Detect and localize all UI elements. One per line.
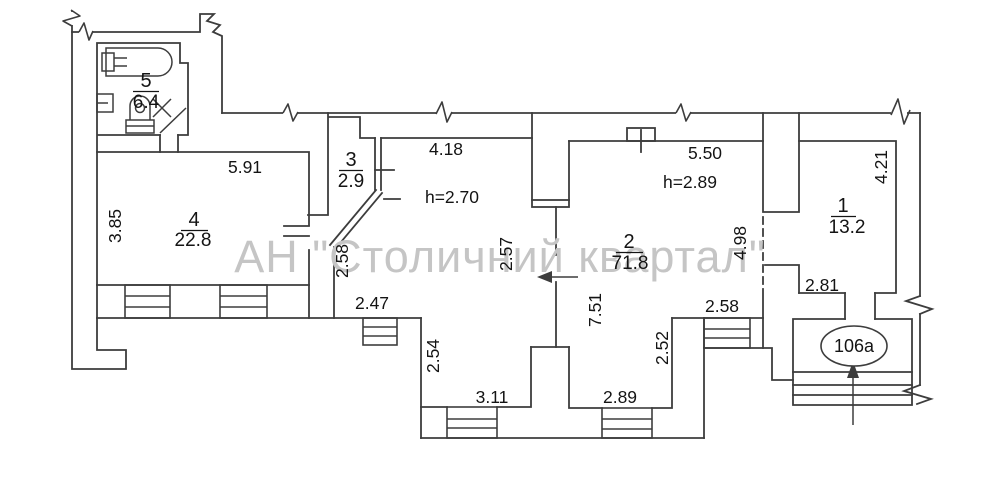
wall-break-symbols: [63, 10, 910, 124]
window-room2-east: [704, 318, 750, 348]
break-bath-top: [79, 23, 93, 40]
break-top-right: [891, 99, 910, 124]
floor-plan: АН "Столичний квартал" 5 6.4 4 22.8 3 2.…: [0, 0, 1000, 502]
room-4-number: 4: [188, 209, 199, 231]
room-2-area: 71.8: [612, 253, 649, 274]
corridor-step: [765, 265, 799, 293]
room3-door-strip: [375, 138, 381, 190]
dim-room2-window: 2.58: [705, 296, 739, 316]
break-top-1: [283, 104, 298, 122]
right-shaft-walls: [763, 113, 799, 212]
room1-door-jambs: [845, 293, 875, 319]
room-5-number: 5: [140, 70, 151, 92]
room3-door-ticks: [375, 170, 400, 199]
room-3-area: 2.9: [338, 171, 364, 192]
shaft-walls: [532, 113, 569, 200]
entrance-unit-number: 106a: [834, 336, 875, 356]
walls: [72, 12, 932, 438]
window-bay-right: [602, 408, 652, 438]
room-5-area: 6.4: [133, 92, 160, 113]
dim-room1-right: 4.21: [871, 150, 891, 184]
room-4-label: 4 22.8: [175, 209, 212, 251]
wall-break-right-1: [906, 296, 932, 314]
room-3-label: 3 2.9: [338, 149, 364, 192]
dim-room4-top: 5.91: [228, 157, 262, 177]
dim-room2-top: 5.50: [688, 143, 722, 163]
dim-bay-bottom-right: 2.89: [603, 387, 637, 407]
sink-icon: [97, 94, 113, 112]
window-hall: [363, 318, 397, 345]
dim-bay-bottom-left: 3.11: [476, 387, 509, 407]
room-1-area: 13.2: [829, 217, 866, 238]
dim-bay-left-side: 2.54: [423, 339, 443, 373]
dim-room1-bottom: 2.81: [805, 275, 839, 295]
dim-hall-right: 2.57: [496, 237, 516, 271]
dim-bay-left-top: 2.47: [355, 293, 389, 313]
window-room4-right: [220, 285, 267, 318]
break-top-2: [436, 102, 452, 122]
dim-room4-left: 3.85: [105, 209, 125, 243]
room-4-area: 22.8: [175, 230, 212, 251]
window-bay-left: [447, 407, 497, 438]
dim-room2-right: 4.98: [730, 226, 750, 260]
break-top-3: [676, 104, 691, 122]
room-2-number: 2: [623, 231, 634, 253]
entrance-arrow: [847, 361, 859, 425]
window-room4-left: [125, 285, 170, 318]
height-room2: h=2.89: [663, 172, 717, 192]
dim-bay-right-side: 2.52: [652, 331, 672, 365]
bathroom-door-jambs: [160, 135, 178, 152]
dim-hall-left: 2.58: [332, 244, 352, 278]
dim-room2-left: 7.51: [585, 293, 605, 327]
dim-hall-top: 4.18: [429, 139, 463, 159]
room-1-number: 1: [837, 195, 848, 217]
room-1-label: 1 13.2: [829, 195, 866, 238]
height-hall: h=2.70: [425, 187, 479, 207]
bathtub-icon: [102, 48, 172, 76]
room3-walls: [308, 113, 532, 215]
floor-plan-page: АН "Столичний квартал" 5 6.4 4 22.8 3 2.…: [0, 0, 1000, 502]
room4-window-wall-caps: [97, 285, 309, 318]
room2-window-sill-path: [704, 348, 793, 380]
room-3-number: 3: [345, 149, 356, 171]
break-left-wall: [63, 10, 80, 26]
entrance-label: 106a: [821, 326, 887, 366]
shaft-cap: [532, 200, 569, 207]
